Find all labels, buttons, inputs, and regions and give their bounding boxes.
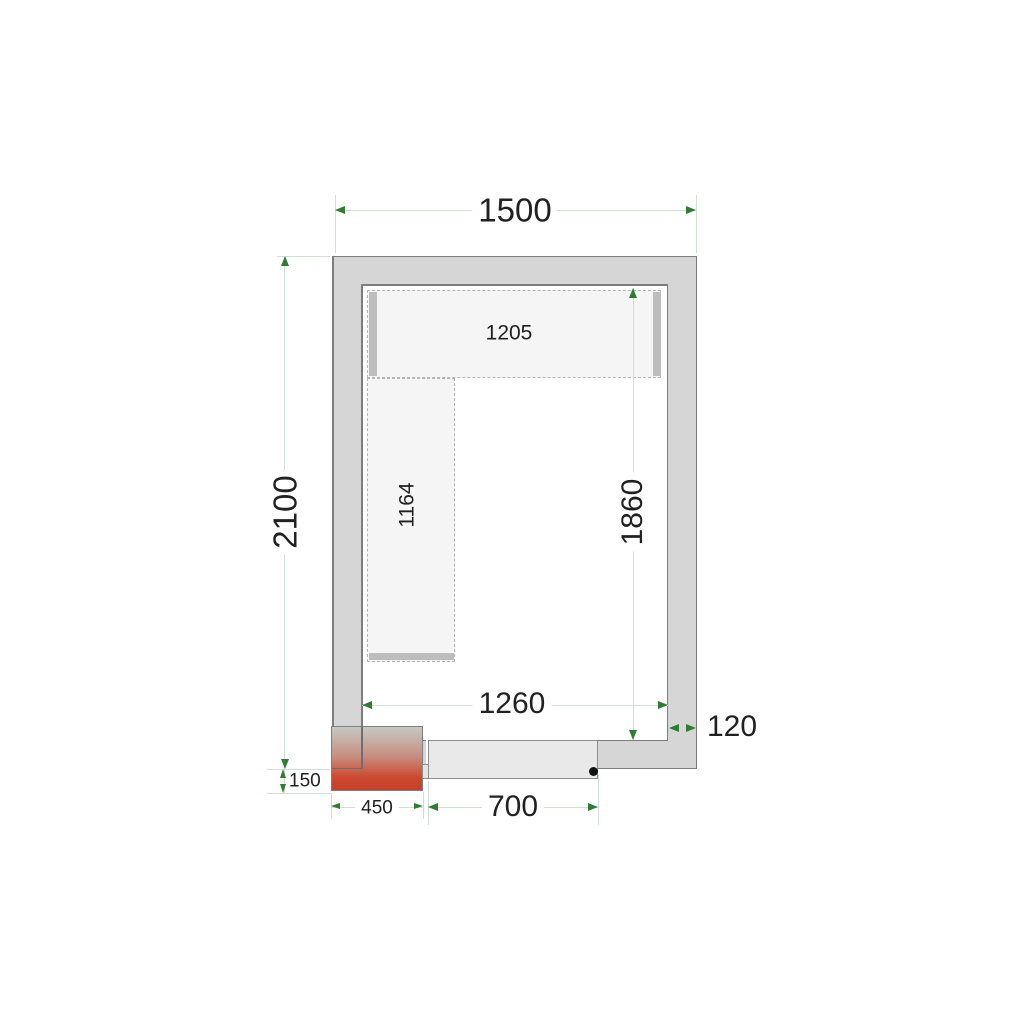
dim-outer-height-ext-bottom: [267, 769, 330, 770]
dim-outer-width-ext-right: [696, 195, 697, 253]
arrow-left-icon: [669, 724, 679, 732]
wall-outline-int-left: [361, 284, 363, 769]
dim-unit-offset-label: 150: [289, 772, 321, 791]
wall-outline-ext-left: [332, 256, 334, 769]
shelf-top-length-label: 1205: [486, 323, 533, 344]
wall-bottom-right: [594, 740, 697, 769]
arrow-down-icon: [629, 730, 637, 740]
shelf-top-right-support: [653, 292, 661, 376]
arrow-up-icon: [280, 769, 286, 778]
wall-outline-ext-bottom-right: [594, 768, 697, 770]
arrow-left-icon: [428, 803, 438, 811]
wall-outline-ext-top: [332, 256, 697, 258]
shelf-left-bottom-support: [369, 653, 454, 660]
wall-outline-ext-right: [696, 256, 698, 769]
wall-line-through-unit-horizontal: [332, 768, 361, 770]
arrow-right-icon: [414, 803, 423, 809]
arrow-right-icon: [686, 206, 696, 214]
dim-outer-height-label: 2100: [267, 469, 304, 554]
arrow-right-icon: [658, 701, 668, 709]
wall-top: [332, 256, 697, 285]
dim-outer-width-label: 1500: [472, 192, 557, 229]
wall-left: [332, 256, 361, 769]
dim-door-width-label: 700: [482, 790, 544, 824]
dim-unit-offset-ext-bottom: [267, 793, 331, 794]
shelf-left-length-label: 1164: [397, 482, 418, 527]
arrow-down-icon: [281, 759, 289, 769]
shelf-top-left-support: [369, 292, 377, 376]
arrow-right-icon: [686, 724, 696, 732]
dim-door-width-ext-right: [598, 775, 599, 825]
arrow-left-icon: [335, 206, 345, 214]
wall-outline-int-top: [361, 284, 668, 286]
cooling-unit-block: [331, 726, 423, 791]
wall-outline-int-right: [667, 284, 669, 741]
door-panel: [428, 740, 598, 779]
dim-unit-width-label: 450: [355, 797, 399, 820]
arrow-up-icon: [629, 288, 637, 298]
arrow-left-icon: [331, 803, 340, 809]
dim-inner-height-label: 1860: [616, 473, 650, 552]
dim-wall-thickness-label: 120: [707, 712, 757, 742]
wall-line-through-unit-vertical: [361, 726, 363, 769]
arrow-up-icon: [281, 256, 289, 266]
dim-inner-width-label: 1260: [473, 687, 552, 721]
floor-plan-drawing: 1205 1164 1500 2100 1860 1260 120 150 45…: [0, 0, 1024, 1024]
arrow-down-icon: [280, 784, 286, 793]
dim-outer-width-ext-left: [335, 195, 336, 253]
arrow-right-icon: [588, 803, 598, 811]
arrow-left-icon: [362, 701, 372, 709]
wall-right: [668, 256, 697, 769]
